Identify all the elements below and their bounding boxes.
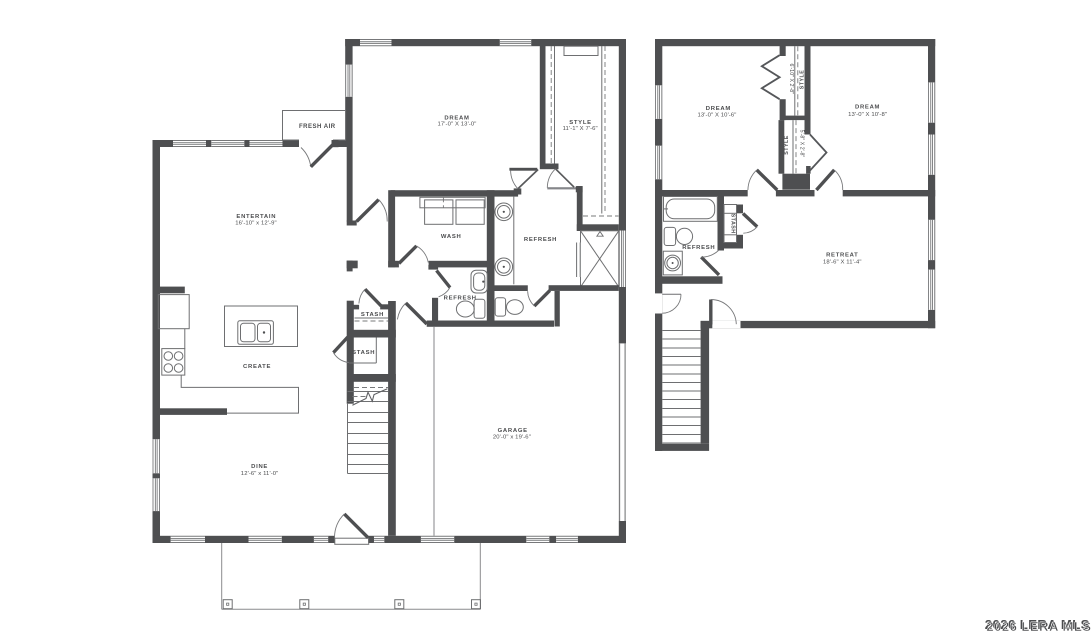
svg-text:STYLE: STYLE xyxy=(569,120,592,126)
svg-text:CREATE: CREATE xyxy=(243,364,271,370)
svg-text:REFRESH: REFRESH xyxy=(682,245,715,251)
svg-text:FRESH AIR: FRESH AIR xyxy=(299,124,336,130)
svg-text:STASH: STASH xyxy=(352,350,375,356)
svg-text:17'-0" X 13'-0": 17'-0" X 13'-0" xyxy=(437,122,476,128)
svg-text:DREAM: DREAM xyxy=(444,115,469,121)
svg-text:WASH: WASH xyxy=(441,234,462,240)
svg-text:6'-10" X 2'-8": 6'-10" X 2'-8" xyxy=(788,64,794,95)
svg-text:STYLE: STYLE xyxy=(799,70,805,90)
svg-text:GARAGE: GARAGE xyxy=(498,428,528,434)
svg-text:13'-0" X 10'-6": 13'-0" X 10'-6" xyxy=(697,112,736,118)
svg-text:STYLE: STYLE xyxy=(784,135,790,155)
svg-text:11'-1" X 7'-6": 11'-1" X 7'-6" xyxy=(563,126,598,132)
svg-text:18'-6" X 11'-4": 18'-6" X 11'-4" xyxy=(823,260,862,266)
svg-text:13'-0" X 10'-8": 13'-0" X 10'-8" xyxy=(848,112,887,118)
svg-text:REFRESH: REFRESH xyxy=(444,296,477,302)
svg-text:STASH: STASH xyxy=(730,214,736,234)
svg-text:DREAM: DREAM xyxy=(855,104,880,110)
svg-text:20'-0" x 19'-6": 20'-0" x 19'-6" xyxy=(493,435,531,441)
svg-text:STASH: STASH xyxy=(361,312,384,318)
svg-text:DREAM: DREAM xyxy=(706,106,731,112)
svg-text:12'-6" x 11'-0": 12'-6" x 11'-0" xyxy=(241,471,279,477)
svg-text:16'-10" x 12'-9": 16'-10" x 12'-9" xyxy=(235,221,276,227)
svg-text:2026 LERA MLS: 2026 LERA MLS xyxy=(986,619,1091,633)
svg-text:5'-8" X 2'-8": 5'-8" X 2'-8" xyxy=(799,130,805,158)
svg-text:DINE: DINE xyxy=(251,464,268,470)
svg-text:RETREAT: RETREAT xyxy=(826,252,858,258)
svg-text:ENTERTAIN: ENTERTAIN xyxy=(236,214,276,220)
svg-text:REFRESH: REFRESH xyxy=(524,237,557,243)
